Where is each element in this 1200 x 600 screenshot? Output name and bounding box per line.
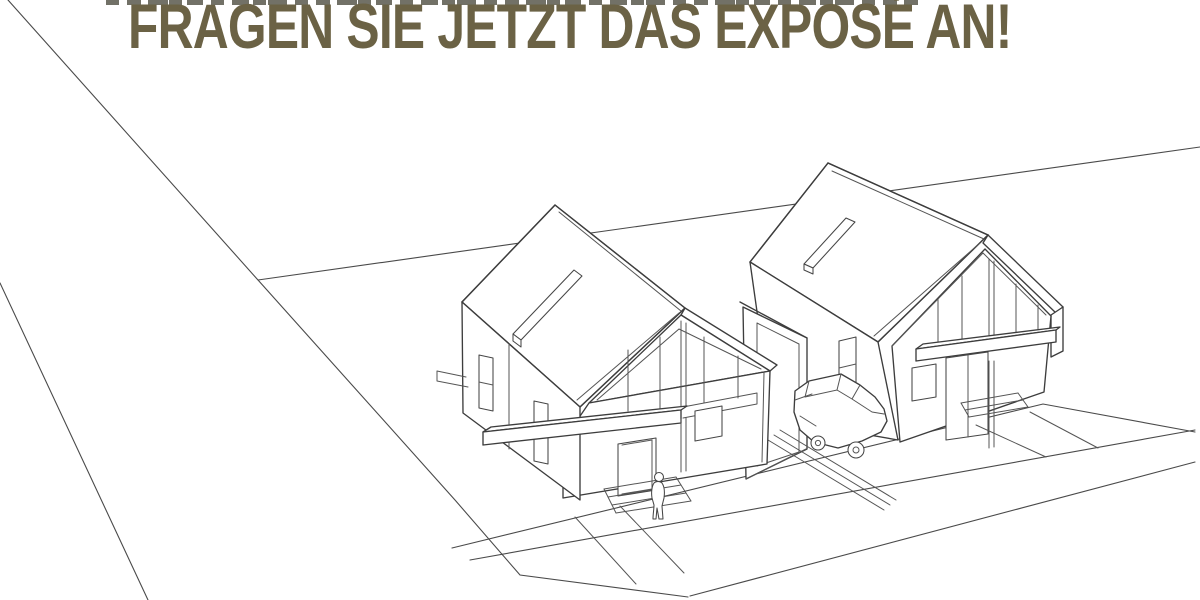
houses-line-drawing [0,0,1200,600]
left-house [437,205,777,500]
walkway-left [575,506,684,584]
flyer: FRAGEN SIE JETZT DAS EXPOSÉ AN! [0,0,1200,600]
entrance-door-left [618,438,656,496]
window-right-house-front [912,364,936,401]
entrance-door-right [946,352,988,440]
window-left-house-front [695,406,722,441]
